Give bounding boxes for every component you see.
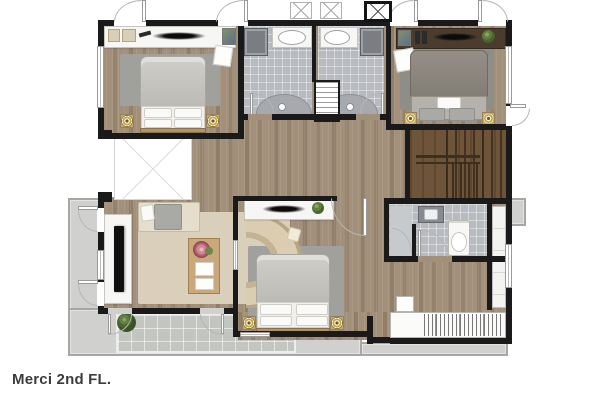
photo-frame <box>222 28 236 45</box>
round-sink <box>346 103 354 111</box>
floor-caption: Merci 2nd FL. <box>12 371 111 388</box>
wardrobe-hanging-clothes <box>424 314 504 336</box>
cushion <box>419 108 445 121</box>
lamp <box>405 113 416 124</box>
books <box>195 278 214 290</box>
sink-basin <box>324 30 350 45</box>
lamp <box>243 317 255 329</box>
lamp <box>121 115 133 127</box>
papers <box>213 45 234 67</box>
stair-railing <box>416 155 480 158</box>
decor-tray <box>152 32 206 40</box>
door-gap <box>97 208 104 232</box>
tray <box>122 29 136 42</box>
lamp <box>483 113 494 124</box>
pillow <box>140 204 155 222</box>
door-arc <box>114 0 142 22</box>
wall-corner <box>100 130 112 139</box>
stair-railing <box>416 162 480 164</box>
wall-segment <box>412 224 416 258</box>
wall-segment <box>98 20 512 26</box>
pillow <box>260 304 292 315</box>
door-leaf <box>142 0 146 22</box>
lamp <box>331 317 343 329</box>
pillow <box>260 316 292 326</box>
cushion <box>449 108 475 121</box>
storage-box <box>396 296 414 312</box>
photo-frame <box>398 30 411 46</box>
window-vent <box>290 2 312 19</box>
pillow <box>296 316 328 326</box>
plant <box>312 202 324 214</box>
wall-segment <box>405 128 410 202</box>
stair-baluster <box>460 164 462 202</box>
frame <box>415 31 420 44</box>
window <box>97 46 104 108</box>
cushion <box>154 204 182 230</box>
sink-basin <box>424 209 438 220</box>
window-vent <box>320 2 342 19</box>
books <box>195 262 214 276</box>
television <box>114 226 124 292</box>
floorplan <box>0 0 600 400</box>
door-arc <box>512 108 530 126</box>
sink-basin <box>278 30 306 45</box>
door-gap <box>356 114 380 120</box>
window <box>505 46 512 104</box>
wall-segment <box>238 20 244 139</box>
television-flat <box>262 205 306 213</box>
lamp <box>207 115 219 127</box>
window <box>505 244 512 288</box>
shower <box>244 28 268 56</box>
stair-baluster <box>476 164 478 202</box>
frame <box>422 31 427 44</box>
pillow <box>144 119 172 128</box>
window <box>97 250 104 280</box>
stair-baluster <box>468 164 470 202</box>
door-leaf <box>414 0 418 22</box>
wall-segment <box>386 198 512 204</box>
pillow <box>174 119 202 128</box>
wall-corner <box>98 192 112 202</box>
bed-duvet <box>256 254 330 304</box>
pillow <box>144 108 172 118</box>
wall-segment <box>487 200 492 310</box>
plant <box>482 30 495 43</box>
bed-duvet <box>140 56 206 108</box>
decor-tray <box>432 33 478 41</box>
wall-segment <box>98 133 244 139</box>
wall-segment <box>390 338 512 344</box>
void-open-to-below <box>114 138 192 200</box>
shower <box>360 28 384 56</box>
wall-segment <box>312 26 316 82</box>
terrace-strip-right <box>360 342 508 356</box>
void-left-margin <box>100 139 114 197</box>
door-leaf <box>381 93 384 115</box>
window-vent-framed <box>364 1 392 22</box>
wall-segment <box>384 198 389 262</box>
pillow <box>296 304 328 315</box>
wall-segment <box>367 337 390 343</box>
floorplan-screenshot: Merci 2nd FL. <box>0 0 600 400</box>
door-arc <box>482 0 508 22</box>
wall-segment <box>506 130 512 230</box>
door-gap <box>97 282 104 306</box>
bed-duvet <box>410 50 488 98</box>
round-sink <box>278 103 286 111</box>
window <box>233 240 238 270</box>
door-gap <box>248 114 272 120</box>
tray <box>108 29 120 42</box>
flower-greens <box>205 247 213 255</box>
door-arc <box>216 0 244 22</box>
pillow <box>174 108 202 118</box>
wall-segment <box>233 196 337 201</box>
stair-baluster <box>452 164 454 202</box>
window <box>240 332 270 337</box>
door-leaf <box>244 0 248 22</box>
toilet-bowl <box>451 232 467 252</box>
